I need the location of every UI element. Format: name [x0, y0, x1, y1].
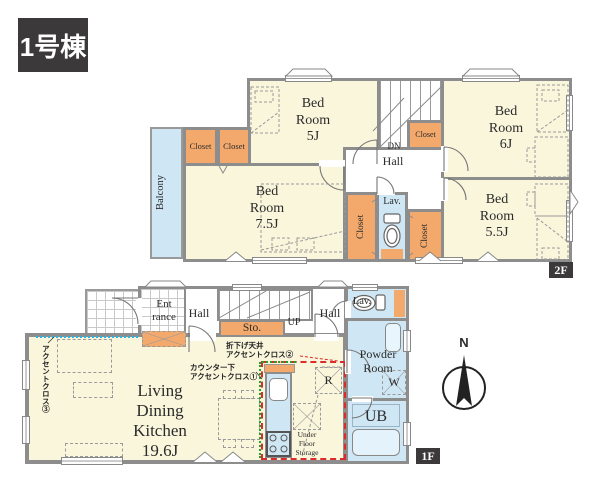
entrance-label: Ent rance: [144, 298, 184, 324]
coffee-table: [73, 382, 113, 398]
dining-table: [218, 398, 260, 440]
dining-chair: [223, 439, 236, 448]
under-floor-storage-box: [293, 403, 321, 430]
window: [285, 75, 332, 82]
lavatory-2f-label: Lav.: [378, 196, 406, 208]
window: [462, 75, 520, 82]
up-label: UP: [283, 317, 305, 329]
shoe-cabinet: [142, 331, 186, 347]
bedroom-7-5j-label: Bed Room 7.5J: [227, 184, 307, 234]
dining-chair: [241, 439, 254, 448]
closet-2f-b-label: Closet: [217, 127, 251, 166]
unit-bath-label: UB: [356, 408, 396, 427]
window: [352, 284, 378, 291]
kitchen-sink: [269, 378, 288, 401]
dining-chair: [241, 390, 254, 399]
floor-tag-1f: 1F: [416, 448, 440, 464]
window: [566, 95, 573, 131]
closet-2f-a-label: Closet: [183, 127, 218, 166]
washer-label: W: [382, 370, 406, 395]
note-counter-accent: カウンター下 アクセントクロス①: [190, 363, 262, 382]
floor-plan: 1号棟 Balcony Bed Room 5J Bed Room 6J Bed …: [0, 0, 600, 499]
accent-line-cyan: [36, 336, 138, 339]
porch: [85, 289, 140, 335]
balcony-label: Balcony: [155, 160, 177, 226]
note-accent-wall: アクセントクロス③: [41, 345, 50, 421]
lavatory-1f-cabinet: [394, 290, 405, 317]
floor-tag-2f: 2F: [549, 262, 573, 278]
compass-north-label: N: [456, 335, 472, 350]
lavatory-2f-cabinet: [381, 249, 403, 259]
window: [403, 330, 411, 352]
hall-2f-label: Hall: [377, 154, 409, 168]
ldk-label: Living Dining Kitchen 19.6J: [110, 381, 210, 461]
lavatory-1f-label: Lav.: [348, 296, 376, 308]
window: [232, 284, 262, 291]
dn-label: DN: [383, 141, 405, 152]
refrigerator-label: R: [315, 367, 342, 394]
compass-icon: [443, 355, 485, 409]
closet-2f-left-label: Closet: [350, 200, 373, 254]
sofa: [57, 339, 112, 373]
note-dropped-ceiling: 折下げ天井 アクセントクロス②: [226, 341, 310, 360]
window: [252, 257, 307, 264]
hall-upper-label: Hall: [314, 306, 346, 320]
window: [403, 422, 411, 446]
building-title: 1号棟: [18, 18, 88, 72]
hall-1f-label: Hall: [183, 306, 215, 320]
closet-2f-stairs-label: Closet: [407, 120, 444, 150]
storage-label: Sto.: [219, 320, 285, 337]
under-floor-storage-label: Under Floor Storage: [283, 431, 331, 458]
bedroom-5j-label: Bed Room 5J: [273, 96, 353, 146]
window: [415, 257, 463, 264]
bedroom-6j-label: Bed Room 6J: [466, 104, 546, 154]
window: [22, 416, 30, 444]
window: [566, 200, 573, 242]
dining-chair: [223, 390, 236, 399]
window: [22, 360, 30, 390]
bathtub: [352, 429, 400, 456]
bedroom-5-5j-label: Bed Room 5.5J: [457, 192, 537, 242]
closet-2f-right-label: Closet: [414, 214, 437, 258]
